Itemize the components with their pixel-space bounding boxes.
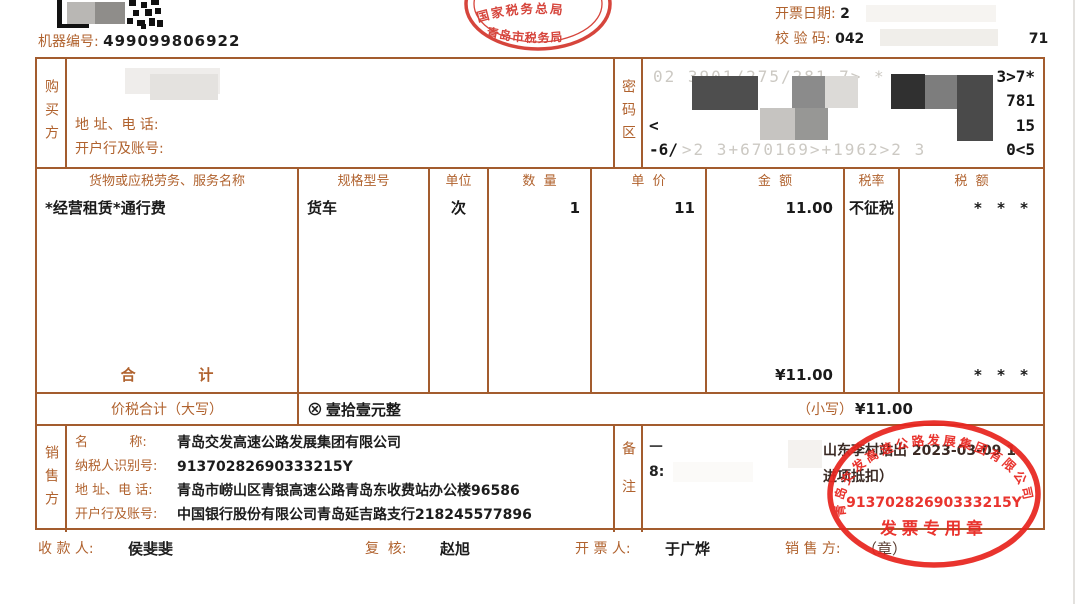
col-spec: 规格型号 货车 [299,169,430,392]
remark-line1-prefix: — [649,438,663,454]
seller-name-label: 名 称: [75,432,177,454]
column-header: 数 量 [489,169,590,195]
column-header: 规格型号 [299,169,428,195]
reviewer-label: 复 核: [365,538,407,558]
column-header: 单 价 [592,169,705,195]
redaction-box [825,76,858,108]
cell-quantity: 1 [489,195,590,223]
col-unit-price: 单 价 11 [592,169,707,392]
stamp-top-text: 国家税务总局 [475,1,565,25]
column-header: 税 额 [900,169,1043,195]
redaction-box [760,108,795,140]
col-quantity: 数 量 1 [489,169,592,392]
password-text: 0<5 [1006,140,1037,159]
redaction-box [692,76,758,110]
machine-number-label: 机器编号: [38,34,99,50]
check-code-suffix: 71 [1029,31,1048,47]
qr-pixels [127,0,163,30]
column-header: 货物或应税劳务、服务名称 [37,169,297,195]
password-text: -6/ [649,140,678,159]
remark-section-label: 备注 [615,426,643,532]
column-header: 单位 [430,169,487,195]
redaction-box [788,440,822,468]
redaction-box [957,75,993,141]
col-tax-amount: 税 额 * * * * * * [900,169,1043,392]
seller-taxid-label: 纳税人识别号: [75,456,177,478]
circled-x-icon: ⊗ [307,398,323,420]
redaction-box [792,76,825,110]
cell-spec: 货车 [299,195,428,223]
password-text: 3>7* [996,67,1037,86]
col-goods-name: 货物或应税劳务、服务名称 *经营租赁*通行费 合 计 [37,169,299,392]
column-header: 税率 [845,169,898,195]
redaction-box [866,5,996,22]
check-code-prefix: 042 [835,31,864,47]
cell-tax-rate: 不征税 [845,195,898,223]
scan-edge-line [1073,0,1075,604]
redaction-box [795,108,828,140]
password-line: -6/ >2 3+670169>+1962>2 3 0<5 [649,138,1037,162]
redaction-box [891,74,925,109]
cell-amount: 11.00 [707,195,843,223]
drawer-label: 开 票 人: [575,538,631,558]
seller-address-line: 地 址、电 话: 青岛市崂山区青银高速公路青岛东收费站办公楼96586 [75,480,613,502]
password-text-faint: >2 3+670169>+1962>2 3 [678,140,1006,159]
password-text: 781 [1006,91,1037,110]
seller-bank-line: 开户行及账号: 中国银行股份有限公司青岛延吉路支行218245577896 [75,504,613,526]
total-amount: ¥11.00 [707,360,843,392]
col-tax-rate: 税率 不征税 [845,169,900,392]
cell-tax-amount: * * * [900,195,1043,223]
payee-label: 收 款 人: [38,538,94,558]
total-label: 合 计 [37,360,297,392]
tax-bureau-stamp: 国家税务总局 青岛市税务局 [460,0,616,54]
goods-table: 货物或应税劳务、服务名称 *经营租赁*通行费 合 计 规格型号 货车 单位 次 … [37,167,1043,392]
remark-line2-prefix: 8: [649,464,664,480]
seal-taxid-text: 91370282690333215Y [846,495,1023,511]
machine-number: 机器编号: 499099806922 [38,31,240,51]
seller-bank-value: 中国银行股份有限公司青岛延吉路支行218245577896 [177,504,532,526]
col-amount: 金 额 11.00 ¥11.00 [707,169,845,392]
seller-address-label: 地 址、电 话: [75,480,177,502]
seal-caption-text: 发票专用章 [879,518,988,538]
qr-code [57,0,163,30]
drawer-name: 于广烨 [665,538,710,559]
total-tax: * * * [900,360,1043,392]
seller-name-line: 名 称: 青岛交发高速公路发展集团有限公司 [75,432,613,454]
qr-corner-bar [57,24,89,28]
invoice-date-value: 2 [840,6,850,22]
seller-bank-label: 开户行及账号: [75,504,177,526]
col-unit: 单位 次 [430,169,489,392]
buyer-bank-label: 开户行及账号: [75,137,613,161]
reviewer-name: 赵旭 [440,538,470,559]
check-code-label: 校 验 码: [775,31,831,47]
redaction-box [880,29,998,46]
invoice-date-label: 开票日期: [775,6,836,22]
subtotal-label: 价税合计（大写） [37,394,299,424]
column-header: 金 额 [707,169,843,195]
seller-address-value: 青岛市崂山区青银高速公路青岛东收费站办公楼96586 [177,480,520,502]
password-text: < [649,116,659,135]
seller-info: 名 称: 青岛交发高速公路发展集团有限公司 纳税人识别号: 9137028269… [67,426,615,532]
svg-text:国家税务总局: 国家税务总局 [475,1,565,25]
password-area-label: 密码区 [615,59,643,167]
payee-name: 侯斐斐 [128,538,173,559]
buyer-address-label: 地 址、电 话: [75,113,613,137]
redaction-box [95,2,125,24]
seller-section-label: 销售方 [37,426,67,532]
amount-in-words: 壹拾壹元整 [326,399,401,420]
seller-taxid-line: 纳税人识别号: 91370282690333215Y [75,456,613,478]
seller-name-value: 青岛交发高速公路发展集团有限公司 [177,432,401,454]
seller-taxid-value: 91370282690333215Y [177,456,353,478]
redaction-box [925,75,958,109]
redaction-box [673,462,753,482]
machine-number-value: 499099806922 [103,32,240,50]
buyer-section-label: 购买方 [37,59,67,167]
redaction-box [150,74,218,100]
cell-unit-price: 11 [592,195,705,223]
cell-goods-name: *经营租赁*通行费 [37,195,297,223]
invoice-page: 机器编号: 499099806922 国家税务总局 青岛市税务局 开票日期: 2… [0,0,1079,604]
cell-unit: 次 [430,195,487,223]
password-text: 15 [1016,116,1037,135]
invoice-seal: 青岛交发高速公路发展集团有限公司 91370282690333215Y 发票专用… [820,416,1048,576]
